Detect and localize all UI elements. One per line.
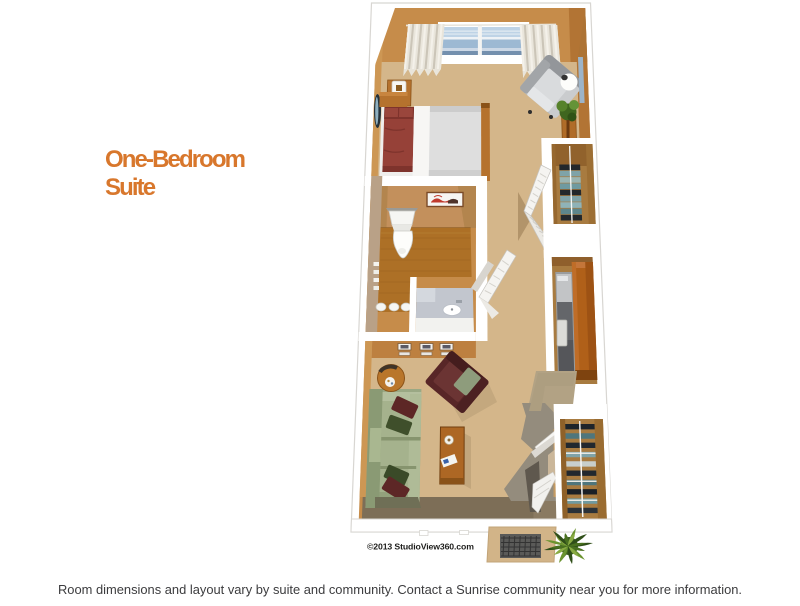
svg-text:©2013 StudioView360.com: ©2013 StudioView360.com — [367, 542, 474, 552]
svg-text:Suite: Suite — [105, 174, 156, 201]
svg-text:One-Bedroom: One-Bedroom — [105, 146, 245, 173]
svg-text:Room dimensions and layout var: Room dimensions and layout vary by suite… — [58, 582, 742, 597]
